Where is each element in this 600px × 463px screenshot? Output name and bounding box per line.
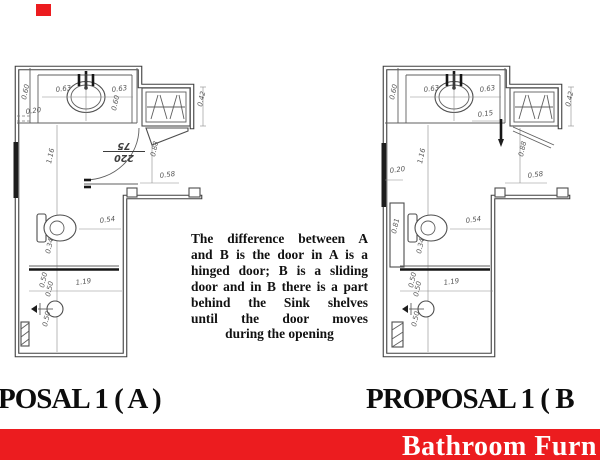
door-size-width: 220 <box>103 151 145 163</box>
dimension-label: 0.15 <box>477 109 494 119</box>
dimension-label: 0.50 <box>410 310 421 327</box>
dimension-label: 1.19 <box>443 277 460 287</box>
dimension-label: 0.58 <box>159 170 176 180</box>
window-bar <box>14 142 19 198</box>
wall-tab <box>495 188 505 197</box>
description-line: The difference between A <box>191 231 368 247</box>
dimension-label: 0.50 <box>41 310 52 327</box>
description-line: behind the Sink shelves <box>191 295 368 311</box>
dimension-label: 0.20 <box>389 165 406 175</box>
dimension-label: 0.20 <box>25 106 42 116</box>
description-line: during the opening <box>191 326 368 342</box>
hatched-column <box>392 322 403 347</box>
dimension-label: 1.16 <box>416 147 427 164</box>
wall-tab <box>127 188 137 197</box>
difference-description: The difference between Aand B is the doo… <box>191 231 368 342</box>
shelf-closet <box>142 88 190 126</box>
dimension-label: 0.42 <box>196 90 207 107</box>
door-size-height: 75 <box>103 140 145 151</box>
dimension-label: 0.60 <box>110 94 121 111</box>
window-bar <box>382 143 387 207</box>
shelf-closet <box>510 88 558 126</box>
proposal-b-floor-plan: 0.600.630.630.150.421.160.880.580.200.81… <box>375 60 600 370</box>
proposal-b-title: PROPOSAL 1 ( B <box>366 383 574 416</box>
dimension-label: 1.16 <box>45 147 56 164</box>
description-line: until the door moves <box>191 311 368 327</box>
red-corner-mark <box>36 4 51 16</box>
description-line: and B is the door in A is a <box>191 247 368 263</box>
footer-brand-text: Bathroom Furn <box>402 431 597 463</box>
proposal-a-floor-plan: 0.600.630.630.600.200.421.160.880.580.54… <box>0 60 215 370</box>
description-line: door and in B there is a part <box>191 279 368 295</box>
dimension-label: 0.63 <box>479 84 496 94</box>
wall-tab <box>189 188 200 197</box>
dimension-label: 1.19 <box>75 277 92 287</box>
toilet <box>408 214 447 242</box>
dimension-label: 0.54 <box>465 215 482 225</box>
slide-canvas: { "colors": { "accent": "#ec1c1f", "wall… <box>0 0 600 460</box>
wall-tab <box>557 188 568 197</box>
dimension-label: 0.42 <box>564 90 575 107</box>
dimension-label: 0.63 <box>111 84 128 94</box>
hatched-column <box>21 322 29 346</box>
proposal-a-title: POSAL 1 ( A ) <box>0 383 161 416</box>
toilet <box>37 214 76 242</box>
dimension-label: 0.88 <box>517 140 528 157</box>
dimension-label: 0.54 <box>99 215 116 225</box>
description-line: hinged door; B is a sliding <box>191 263 368 279</box>
dimension-label: 0.58 <box>527 170 544 180</box>
door-size-tag: 220 75 <box>103 140 145 163</box>
